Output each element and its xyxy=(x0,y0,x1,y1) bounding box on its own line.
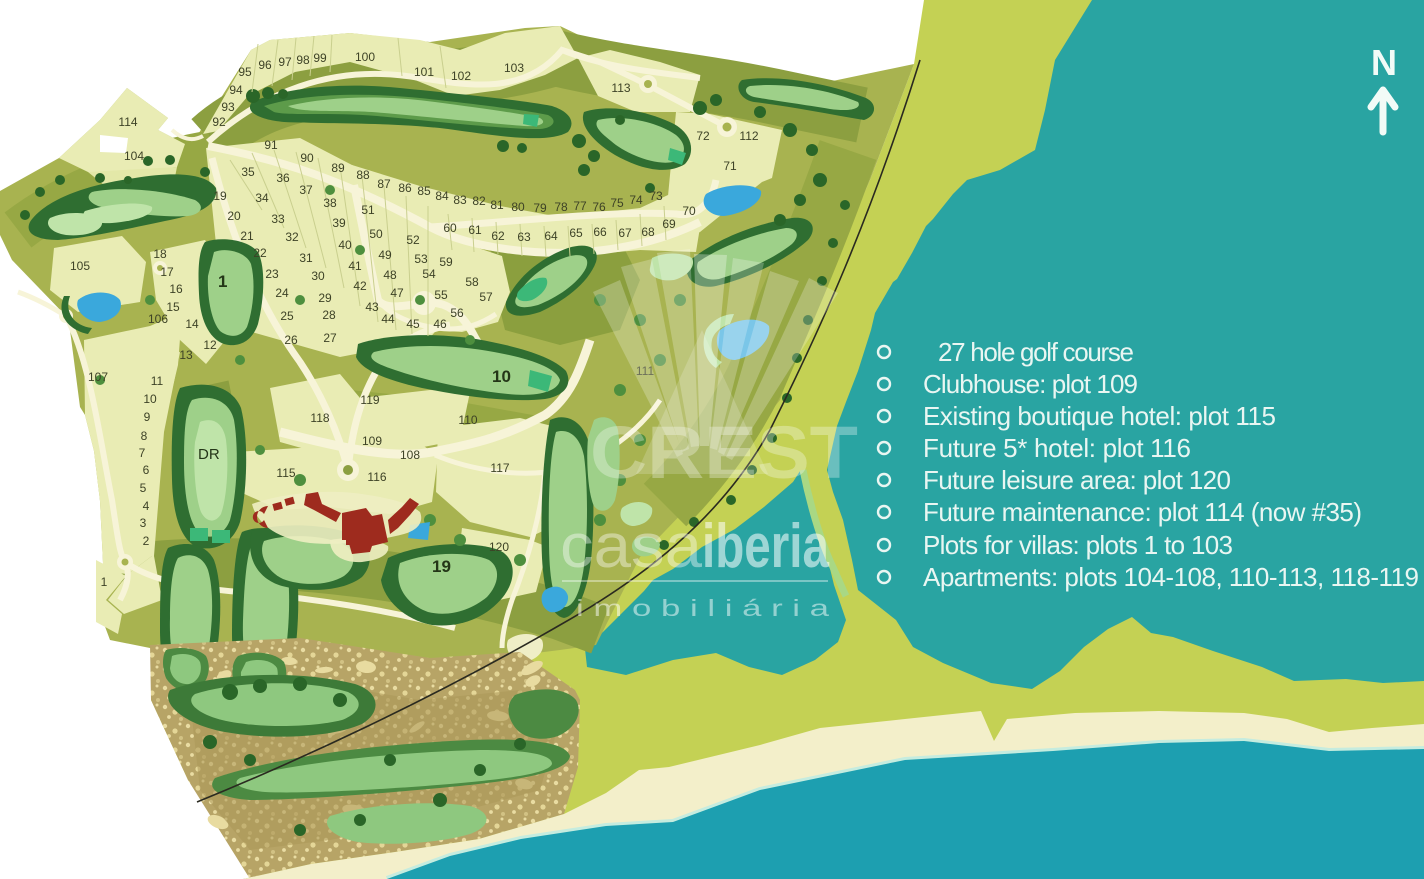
svg-text:34: 34 xyxy=(255,191,269,205)
svg-text:4: 4 xyxy=(143,499,150,513)
svg-text:7: 7 xyxy=(139,446,146,460)
svg-text:27 hole golf course: 27 hole golf course xyxy=(938,337,1134,367)
svg-text:57: 57 xyxy=(479,290,493,304)
svg-text:91: 91 xyxy=(264,138,278,152)
svg-text:100: 100 xyxy=(355,50,375,64)
svg-text:120: 120 xyxy=(489,540,509,554)
svg-text:59: 59 xyxy=(439,255,453,269)
svg-text:51: 51 xyxy=(361,203,375,217)
svg-text:8: 8 xyxy=(141,429,148,443)
svg-text:110: 110 xyxy=(458,413,477,427)
svg-text:87: 87 xyxy=(377,177,391,191)
svg-text:33: 33 xyxy=(271,212,285,226)
svg-text:31: 31 xyxy=(299,251,313,265)
svg-text:2: 2 xyxy=(143,534,150,548)
svg-text:28: 28 xyxy=(322,308,336,322)
svg-text:105: 105 xyxy=(70,259,90,273)
svg-text:19: 19 xyxy=(213,189,227,203)
svg-text:10: 10 xyxy=(492,367,511,386)
svg-text:54: 54 xyxy=(422,267,436,281)
svg-text:82: 82 xyxy=(472,194,486,208)
svg-text:CREST: CREST xyxy=(590,411,858,494)
svg-text:1: 1 xyxy=(218,272,227,291)
svg-text:118: 118 xyxy=(310,411,329,425)
svg-text:3: 3 xyxy=(140,516,147,530)
svg-text:115: 115 xyxy=(276,466,295,480)
svg-text:83: 83 xyxy=(453,193,467,207)
svg-text:24: 24 xyxy=(275,286,289,300)
svg-text:37: 37 xyxy=(299,183,313,197)
svg-text:81: 81 xyxy=(490,198,504,212)
svg-text:5: 5 xyxy=(140,481,147,495)
svg-text:1: 1 xyxy=(101,575,108,589)
svg-text:Plots for villas: plots 1 to 1: Plots for villas: plots 1 to 103 xyxy=(923,530,1233,560)
svg-text:18: 18 xyxy=(153,247,167,261)
svg-text:61: 61 xyxy=(468,223,482,237)
svg-text:89: 89 xyxy=(331,161,345,175)
svg-text:12: 12 xyxy=(203,338,217,352)
svg-text:36: 36 xyxy=(276,171,290,185)
svg-text:65: 65 xyxy=(569,226,583,240)
svg-text:45: 45 xyxy=(406,317,420,331)
svg-text:69: 69 xyxy=(662,217,676,231)
svg-text:55: 55 xyxy=(434,288,448,302)
svg-text:iberia: iberia xyxy=(702,512,829,581)
svg-text:84: 84 xyxy=(435,189,449,203)
svg-text:97: 97 xyxy=(278,55,292,69)
svg-text:56: 56 xyxy=(450,306,464,320)
svg-text:16: 16 xyxy=(169,282,183,296)
svg-text:98: 98 xyxy=(296,53,310,67)
svg-text:103: 103 xyxy=(504,61,524,75)
svg-text:19: 19 xyxy=(432,557,451,576)
svg-text:64: 64 xyxy=(544,229,558,243)
svg-text:90: 90 xyxy=(300,151,314,165)
svg-text:116: 116 xyxy=(367,470,386,484)
svg-text:11: 11 xyxy=(151,374,164,388)
svg-text:71: 71 xyxy=(723,159,737,173)
svg-text:Future maintenance: plot 114 (: Future maintenance: plot 114 (now #35) xyxy=(923,497,1362,527)
svg-text:60: 60 xyxy=(443,221,457,235)
svg-text:42: 42 xyxy=(353,279,367,293)
svg-text:21: 21 xyxy=(240,229,254,243)
svg-text:38: 38 xyxy=(323,196,337,210)
svg-text:i m o b i l i á r i a: i m o b i l i á r i a xyxy=(576,595,829,621)
svg-text:10: 10 xyxy=(143,392,157,406)
svg-text:22: 22 xyxy=(253,246,267,260)
svg-text:58: 58 xyxy=(465,275,479,289)
svg-text:102: 102 xyxy=(451,69,471,83)
svg-text:14: 14 xyxy=(185,317,199,331)
svg-text:44: 44 xyxy=(381,312,395,326)
svg-text:62: 62 xyxy=(491,229,505,243)
svg-text:46: 46 xyxy=(433,317,447,331)
svg-text:73: 73 xyxy=(649,189,663,203)
svg-text:77: 77 xyxy=(573,199,587,213)
svg-text:40: 40 xyxy=(338,238,352,252)
svg-text:78: 78 xyxy=(554,200,568,214)
svg-text:119: 119 xyxy=(360,393,379,407)
svg-text:63: 63 xyxy=(517,230,531,244)
svg-text:32: 32 xyxy=(285,230,299,244)
svg-text:17: 17 xyxy=(160,265,174,279)
svg-text:26: 26 xyxy=(284,333,298,347)
svg-text:72: 72 xyxy=(696,129,710,143)
svg-text:94: 94 xyxy=(229,83,243,97)
svg-text:49: 49 xyxy=(378,248,392,262)
svg-text:DR: DR xyxy=(198,446,220,463)
svg-text:6: 6 xyxy=(143,463,150,477)
svg-text:25: 25 xyxy=(280,309,294,323)
svg-text:15: 15 xyxy=(166,300,180,314)
svg-text:108: 108 xyxy=(400,448,420,462)
svg-text:86: 86 xyxy=(398,181,412,195)
svg-text:101: 101 xyxy=(414,65,434,79)
svg-text:53: 53 xyxy=(414,252,428,266)
svg-text:66: 66 xyxy=(593,225,607,239)
svg-text:N: N xyxy=(1371,42,1397,83)
svg-text:74: 74 xyxy=(629,193,643,207)
svg-text:109: 109 xyxy=(362,434,382,448)
svg-text:104: 104 xyxy=(124,149,144,163)
svg-text:Future 5* hotel: plot 116: Future 5* hotel: plot 116 xyxy=(923,433,1191,463)
svg-text:Existing boutique hotel: plot: Existing boutique hotel: plot 115 xyxy=(923,401,1276,431)
svg-text:Clubhouse: plot 109: Clubhouse: plot 109 xyxy=(923,369,1138,399)
svg-text:47: 47 xyxy=(390,286,404,300)
svg-text:Apartments: plots 104-108, 110: Apartments: plots 104-108, 110-113, 118-… xyxy=(923,562,1419,592)
svg-text:106: 106 xyxy=(148,312,168,326)
svg-text:13: 13 xyxy=(179,348,193,362)
svg-text:39: 39 xyxy=(332,216,346,230)
svg-text:107: 107 xyxy=(88,370,108,384)
svg-text:23: 23 xyxy=(265,267,279,281)
svg-text:117: 117 xyxy=(490,461,509,475)
svg-text:92: 92 xyxy=(212,115,226,129)
svg-text:9: 9 xyxy=(144,410,151,424)
svg-text:99: 99 xyxy=(313,51,327,65)
svg-text:79: 79 xyxy=(533,201,547,215)
svg-text:43: 43 xyxy=(365,300,379,314)
svg-text:95: 95 xyxy=(238,65,252,79)
svg-text:112: 112 xyxy=(739,129,758,143)
svg-text:52: 52 xyxy=(406,233,420,247)
svg-text:80: 80 xyxy=(511,200,525,214)
svg-text:20: 20 xyxy=(227,209,241,223)
svg-text:29: 29 xyxy=(318,291,332,305)
svg-text:35: 35 xyxy=(241,165,255,179)
svg-text:67: 67 xyxy=(618,226,632,240)
svg-text:88: 88 xyxy=(356,168,370,182)
svg-text:41: 41 xyxy=(348,259,362,273)
svg-text:96: 96 xyxy=(258,58,272,72)
svg-text:Future leisure area: plot 120: Future leisure area: plot 120 xyxy=(923,465,1231,495)
svg-text:70: 70 xyxy=(682,204,696,218)
svg-text:casa: casa xyxy=(560,512,703,581)
svg-text:50: 50 xyxy=(369,227,383,241)
svg-text:48: 48 xyxy=(383,268,397,282)
svg-text:68: 68 xyxy=(641,225,655,239)
svg-text:76: 76 xyxy=(592,200,606,214)
svg-text:114: 114 xyxy=(118,115,137,129)
svg-text:113: 113 xyxy=(611,81,630,95)
svg-text:30: 30 xyxy=(311,269,325,283)
svg-text:27: 27 xyxy=(323,331,337,345)
svg-text:75: 75 xyxy=(610,196,624,210)
svg-text:85: 85 xyxy=(417,184,431,198)
svg-text:93: 93 xyxy=(221,100,235,114)
